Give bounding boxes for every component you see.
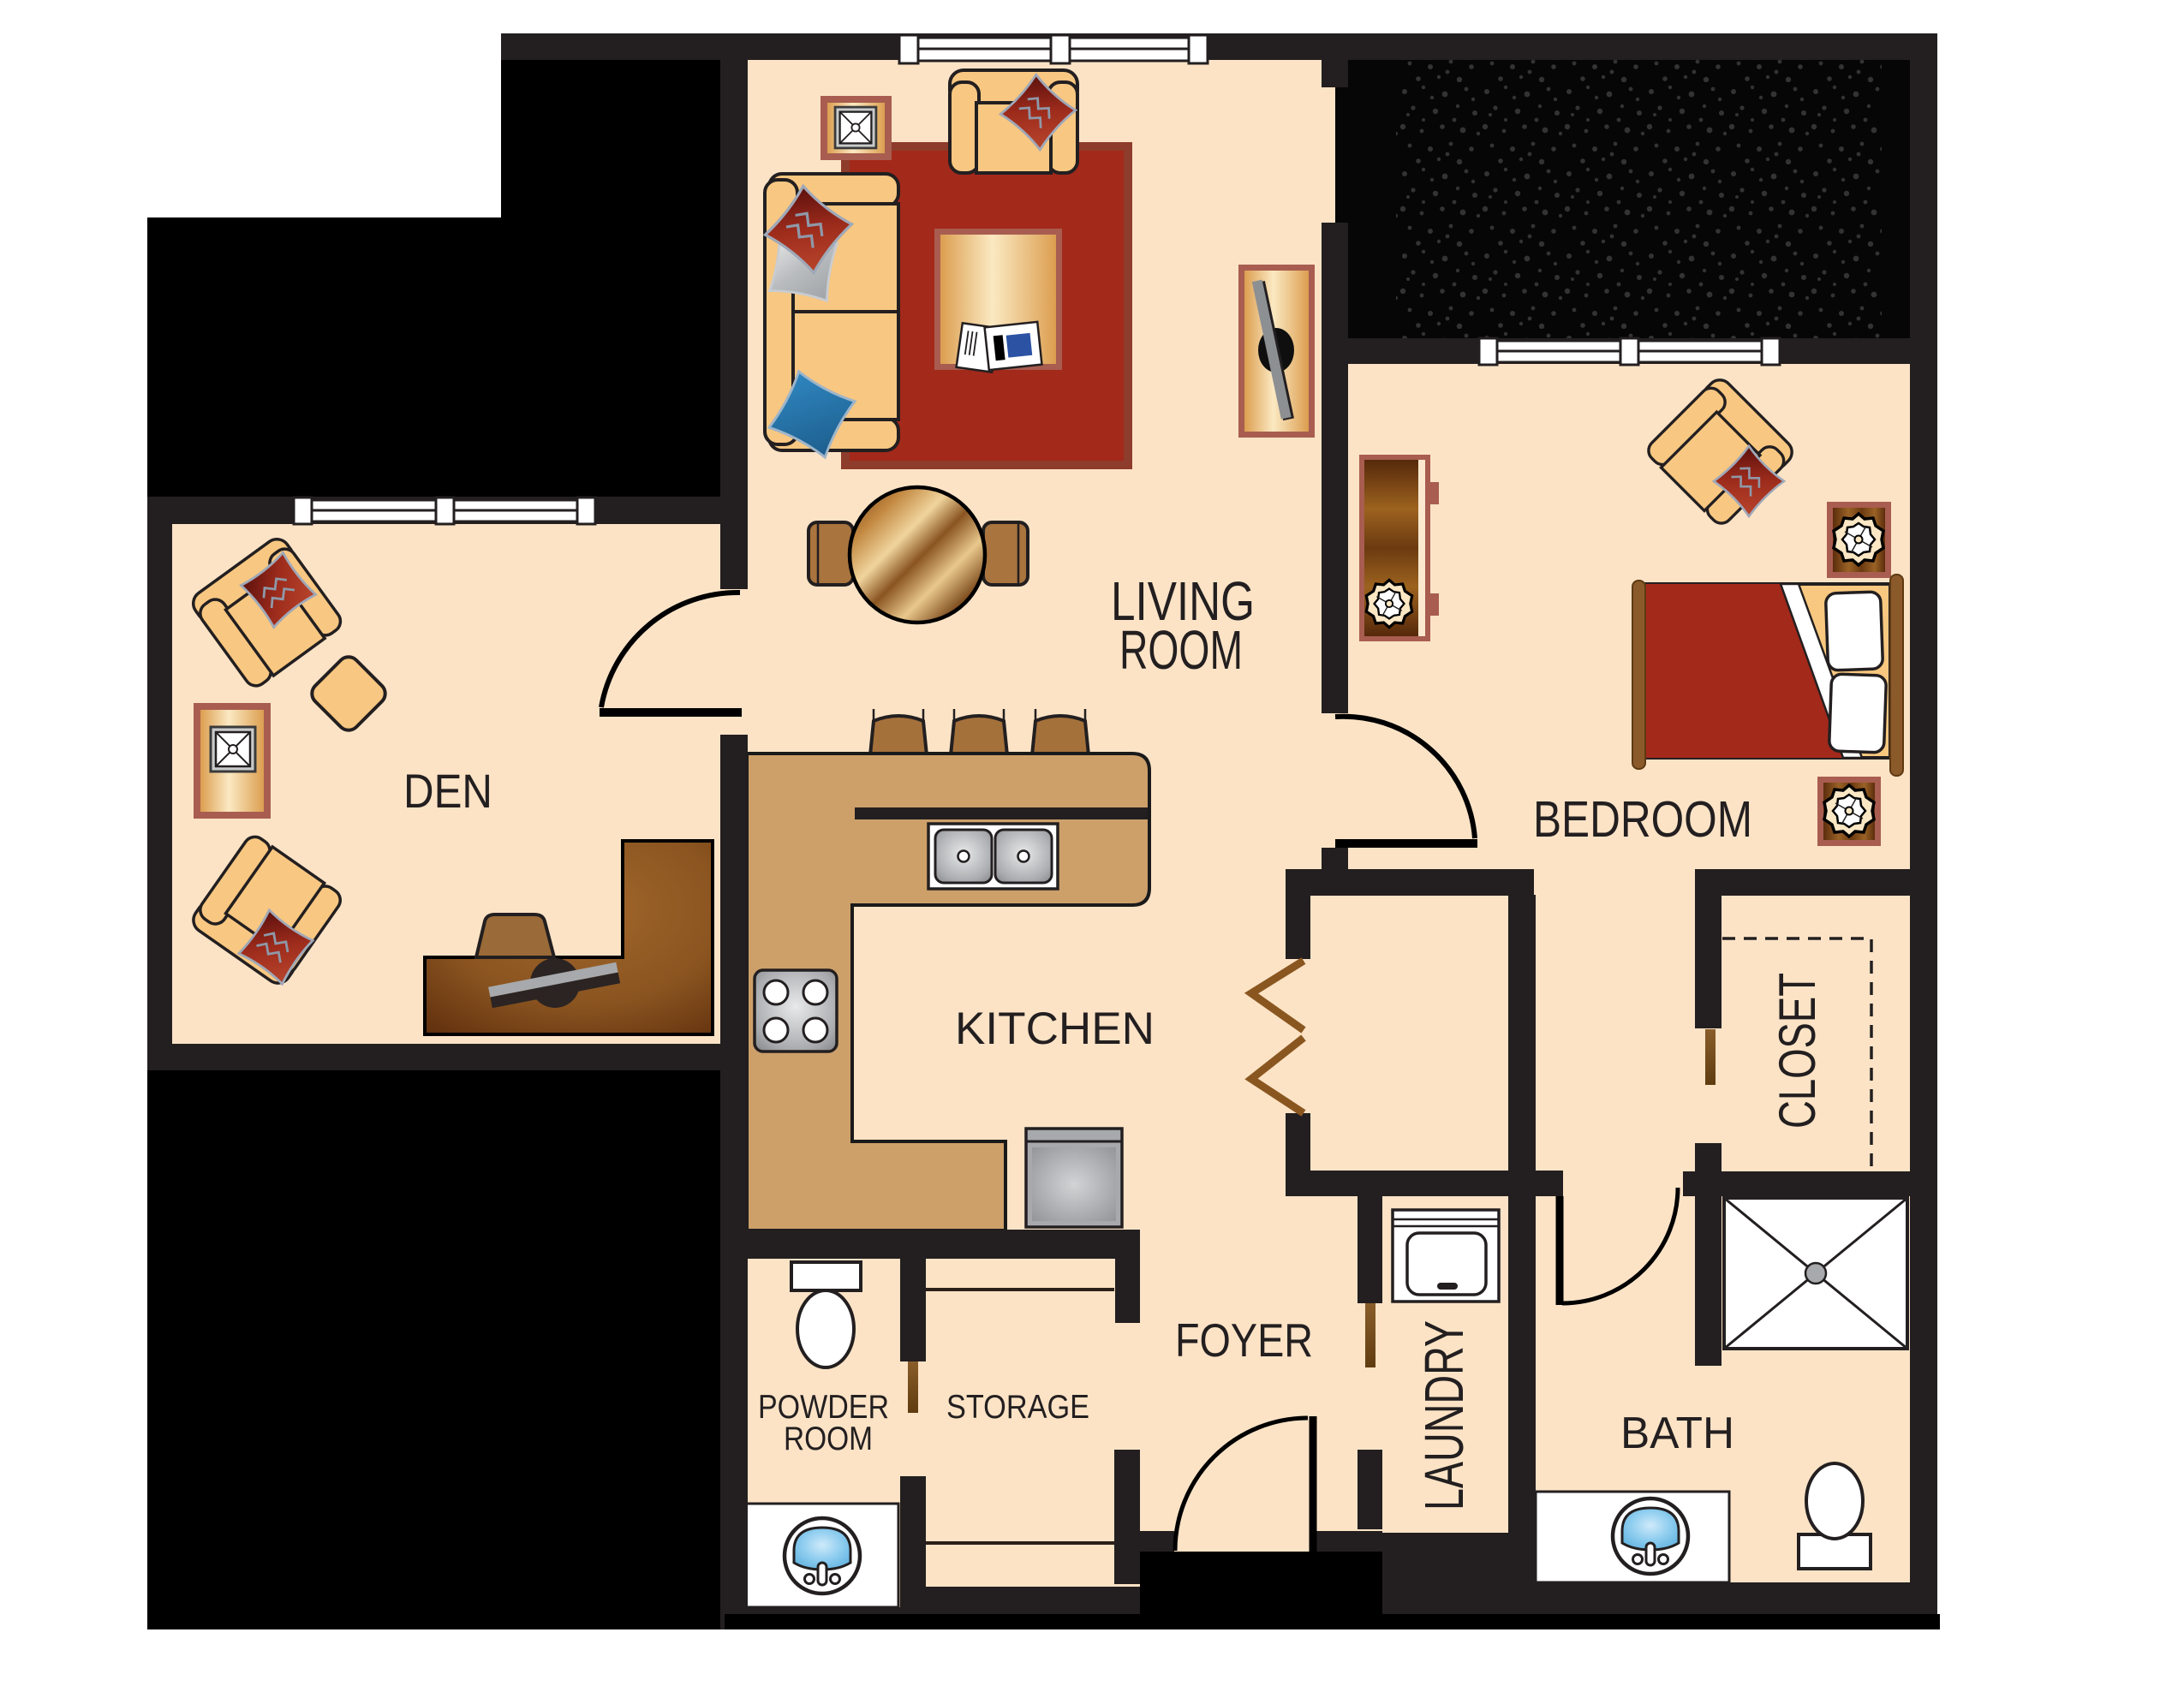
svg-text:LAUNDRY: LAUNDRY: [1413, 1320, 1475, 1510]
svg-text:ROOM: ROOM: [1119, 619, 1243, 681]
svg-text:KITCHEN: KITCHEN: [955, 1004, 1155, 1054]
svg-text:STORAGE: STORAGE: [946, 1389, 1089, 1426]
svg-text:BATH: BATH: [1620, 1409, 1734, 1458]
svg-text:BEDROOM: BEDROOM: [1533, 791, 1752, 848]
svg-text:DEN: DEN: [403, 764, 492, 818]
svg-text:ROOM: ROOM: [784, 1421, 873, 1457]
svg-text:CLOSET: CLOSET: [1769, 973, 1826, 1129]
svg-text:FOYER: FOYER: [1175, 1314, 1313, 1367]
